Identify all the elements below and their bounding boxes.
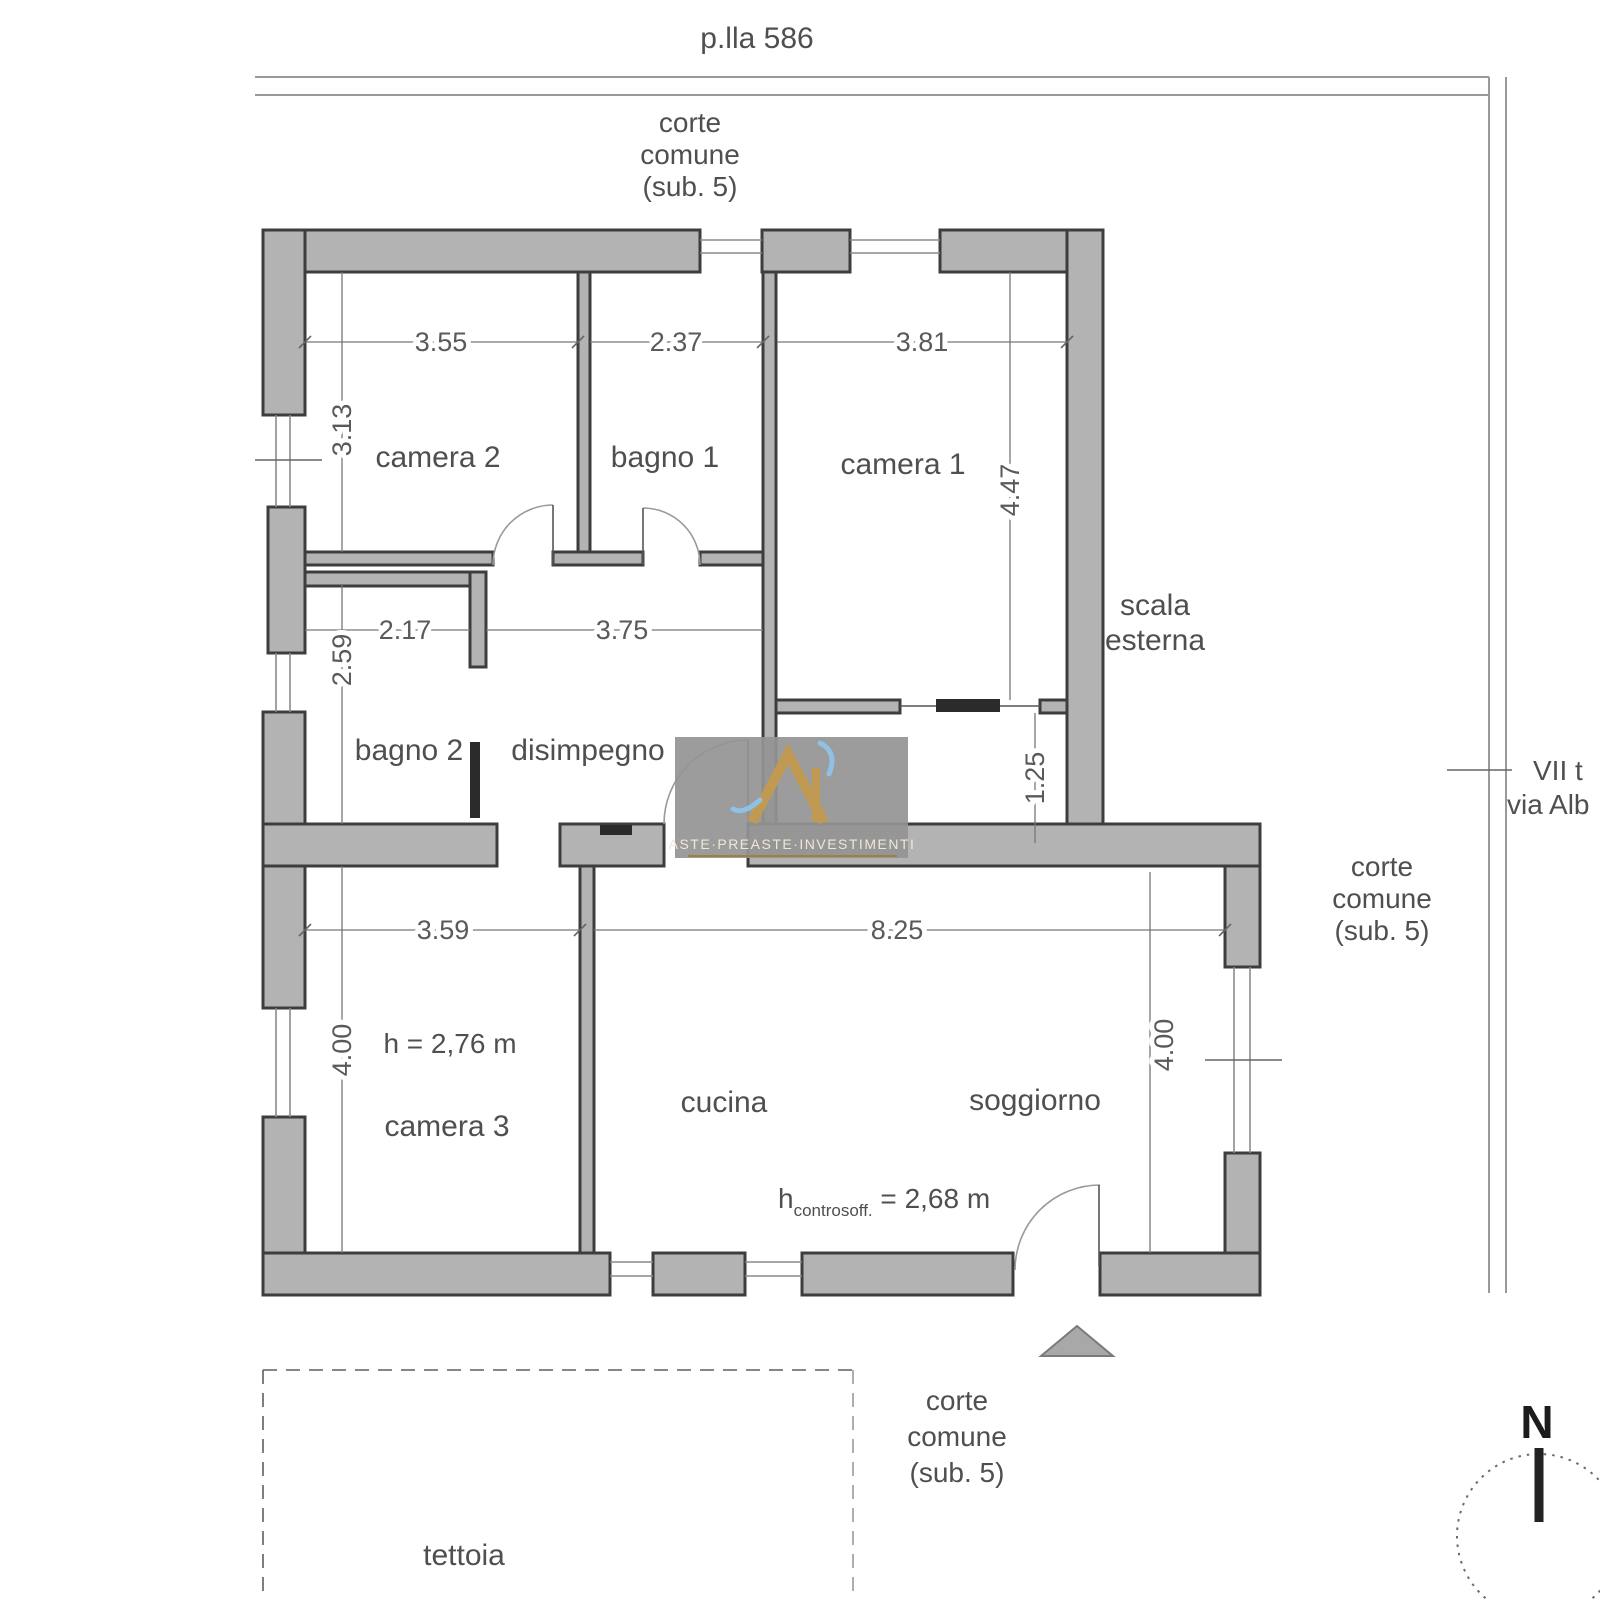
dim-label-soggiorno-depth: 4.00 bbox=[1149, 1019, 1179, 1072]
room-label-camera1: camera 1 bbox=[840, 448, 965, 481]
street-label-line1: VII t bbox=[1533, 755, 1583, 786]
dim-label-bagno2-width: 2.17 bbox=[379, 615, 432, 645]
room-label-bagno2: bagno 2 bbox=[355, 734, 463, 767]
doors bbox=[470, 505, 1100, 1270]
street-label-line2: via Alb bbox=[1507, 789, 1590, 820]
label-cucina-height: hcontrosoff. = 2,68 m bbox=[778, 1183, 990, 1220]
height-value: = 2,68 m bbox=[873, 1183, 991, 1214]
room-label-scala-line1: scala bbox=[1120, 589, 1190, 622]
entrance-arrow-icon bbox=[1041, 1326, 1113, 1356]
dim-label-bagno1-width: 2.37 bbox=[650, 327, 703, 357]
dim-label-camera2-depth: 3.13 bbox=[327, 404, 357, 457]
room-label-cucina: cucina bbox=[681, 1086, 768, 1119]
compass-north-label: N bbox=[1520, 1396, 1553, 1448]
wall-segment bbox=[263, 230, 700, 272]
room-label-bagno1: bagno 1 bbox=[611, 441, 719, 474]
wall-segment bbox=[776, 700, 900, 713]
corte-right-line1: corte bbox=[1351, 851, 1413, 882]
floor-plan-page: 3.55 2.37 3.81 3.13 4.47 2.17 3.75 2.59 … bbox=[0, 0, 1600, 1600]
corte-bottom-line2: comune bbox=[907, 1421, 1007, 1452]
wall-segment bbox=[553, 552, 643, 565]
wall-segment bbox=[470, 572, 486, 667]
room-label-camera2: camera 2 bbox=[375, 441, 500, 474]
label-camera3-height: h = 2,76 m bbox=[383, 1028, 516, 1059]
wall-segment bbox=[802, 1253, 1013, 1295]
corte-top-line2: comune bbox=[640, 139, 740, 170]
wall-segment bbox=[1067, 230, 1103, 866]
wall-segment bbox=[263, 824, 497, 866]
door-leaf-bagno2 bbox=[470, 742, 480, 818]
dim-label-camera1-depth: 4.47 bbox=[995, 464, 1025, 517]
wall-segment bbox=[1040, 700, 1067, 713]
height-symbol: h bbox=[778, 1183, 794, 1214]
wall-segment bbox=[1225, 866, 1260, 967]
compass-circle-icon bbox=[1457, 1454, 1600, 1600]
door-pocket-leaf bbox=[600, 825, 632, 835]
door-arc-camera2 bbox=[493, 505, 553, 565]
watermark-brand-text: ASTE·PREASTE·INVESTIMENTI bbox=[669, 836, 916, 852]
wall-segment bbox=[263, 230, 305, 415]
wall-segment bbox=[263, 712, 305, 824]
corte-right-line2: comune bbox=[1332, 883, 1432, 914]
dim-label-vestibule-depth: 1.25 bbox=[1020, 752, 1050, 805]
tettoia-outline bbox=[263, 1370, 853, 1600]
corte-bottom-line1: corte bbox=[926, 1385, 988, 1416]
dim-label-living-width: 8.25 bbox=[871, 915, 924, 945]
sliding-door-leaf-camera1 bbox=[936, 699, 1000, 712]
corte-top-line1: corte bbox=[659, 107, 721, 138]
tettoia-label: tettoia bbox=[423, 1539, 505, 1572]
wall-segment bbox=[305, 552, 493, 565]
room-label-disimpegno: disimpegno bbox=[511, 734, 664, 767]
floor-plan-drawing: 3.55 2.37 3.81 3.13 4.47 2.17 3.75 2.59 … bbox=[0, 0, 1600, 1600]
corte-bottom-line3: (sub. 5) bbox=[910, 1457, 1005, 1488]
room-label-camera3: camera 3 bbox=[384, 1110, 509, 1143]
door-arc-entrance bbox=[1015, 1185, 1100, 1270]
parcel-label: p.lla 586 bbox=[700, 22, 813, 55]
corte-top-line3: (sub. 5) bbox=[643, 171, 738, 202]
wall-segment bbox=[578, 272, 590, 565]
watermark: ASTE·PREASTE·INVESTIMENTI bbox=[669, 737, 916, 858]
wall-segment bbox=[268, 507, 305, 653]
dim-label-disimpegno-width: 3.75 bbox=[596, 615, 649, 645]
room-label-scala-line2: esterna bbox=[1105, 624, 1205, 657]
wall-segment bbox=[263, 866, 305, 1008]
wall-segment bbox=[305, 572, 470, 586]
wall-segment bbox=[762, 230, 850, 272]
room-label-soggiorno: soggiorno bbox=[969, 1084, 1101, 1117]
corte-right-line3: (sub. 5) bbox=[1335, 915, 1430, 946]
wall-segment bbox=[580, 866, 594, 1253]
dim-label-camera2-width: 3.55 bbox=[415, 327, 468, 357]
dim-label-camera3-width: 3.59 bbox=[417, 915, 470, 945]
door-arc-bagno1 bbox=[643, 508, 700, 565]
wall-segment bbox=[263, 1253, 610, 1295]
wall-segment bbox=[1100, 1253, 1260, 1295]
dim-label-camera1-width: 3.81 bbox=[896, 327, 949, 357]
dim-label-camera3-depth: 4.00 bbox=[327, 1024, 357, 1077]
dim-label-bagno2-depth: 2.59 bbox=[327, 634, 357, 687]
wall-segment bbox=[653, 1253, 745, 1295]
height-subscript: controsoff. bbox=[794, 1201, 873, 1220]
wall-segment bbox=[700, 552, 763, 565]
compass: N bbox=[1457, 1396, 1600, 1600]
